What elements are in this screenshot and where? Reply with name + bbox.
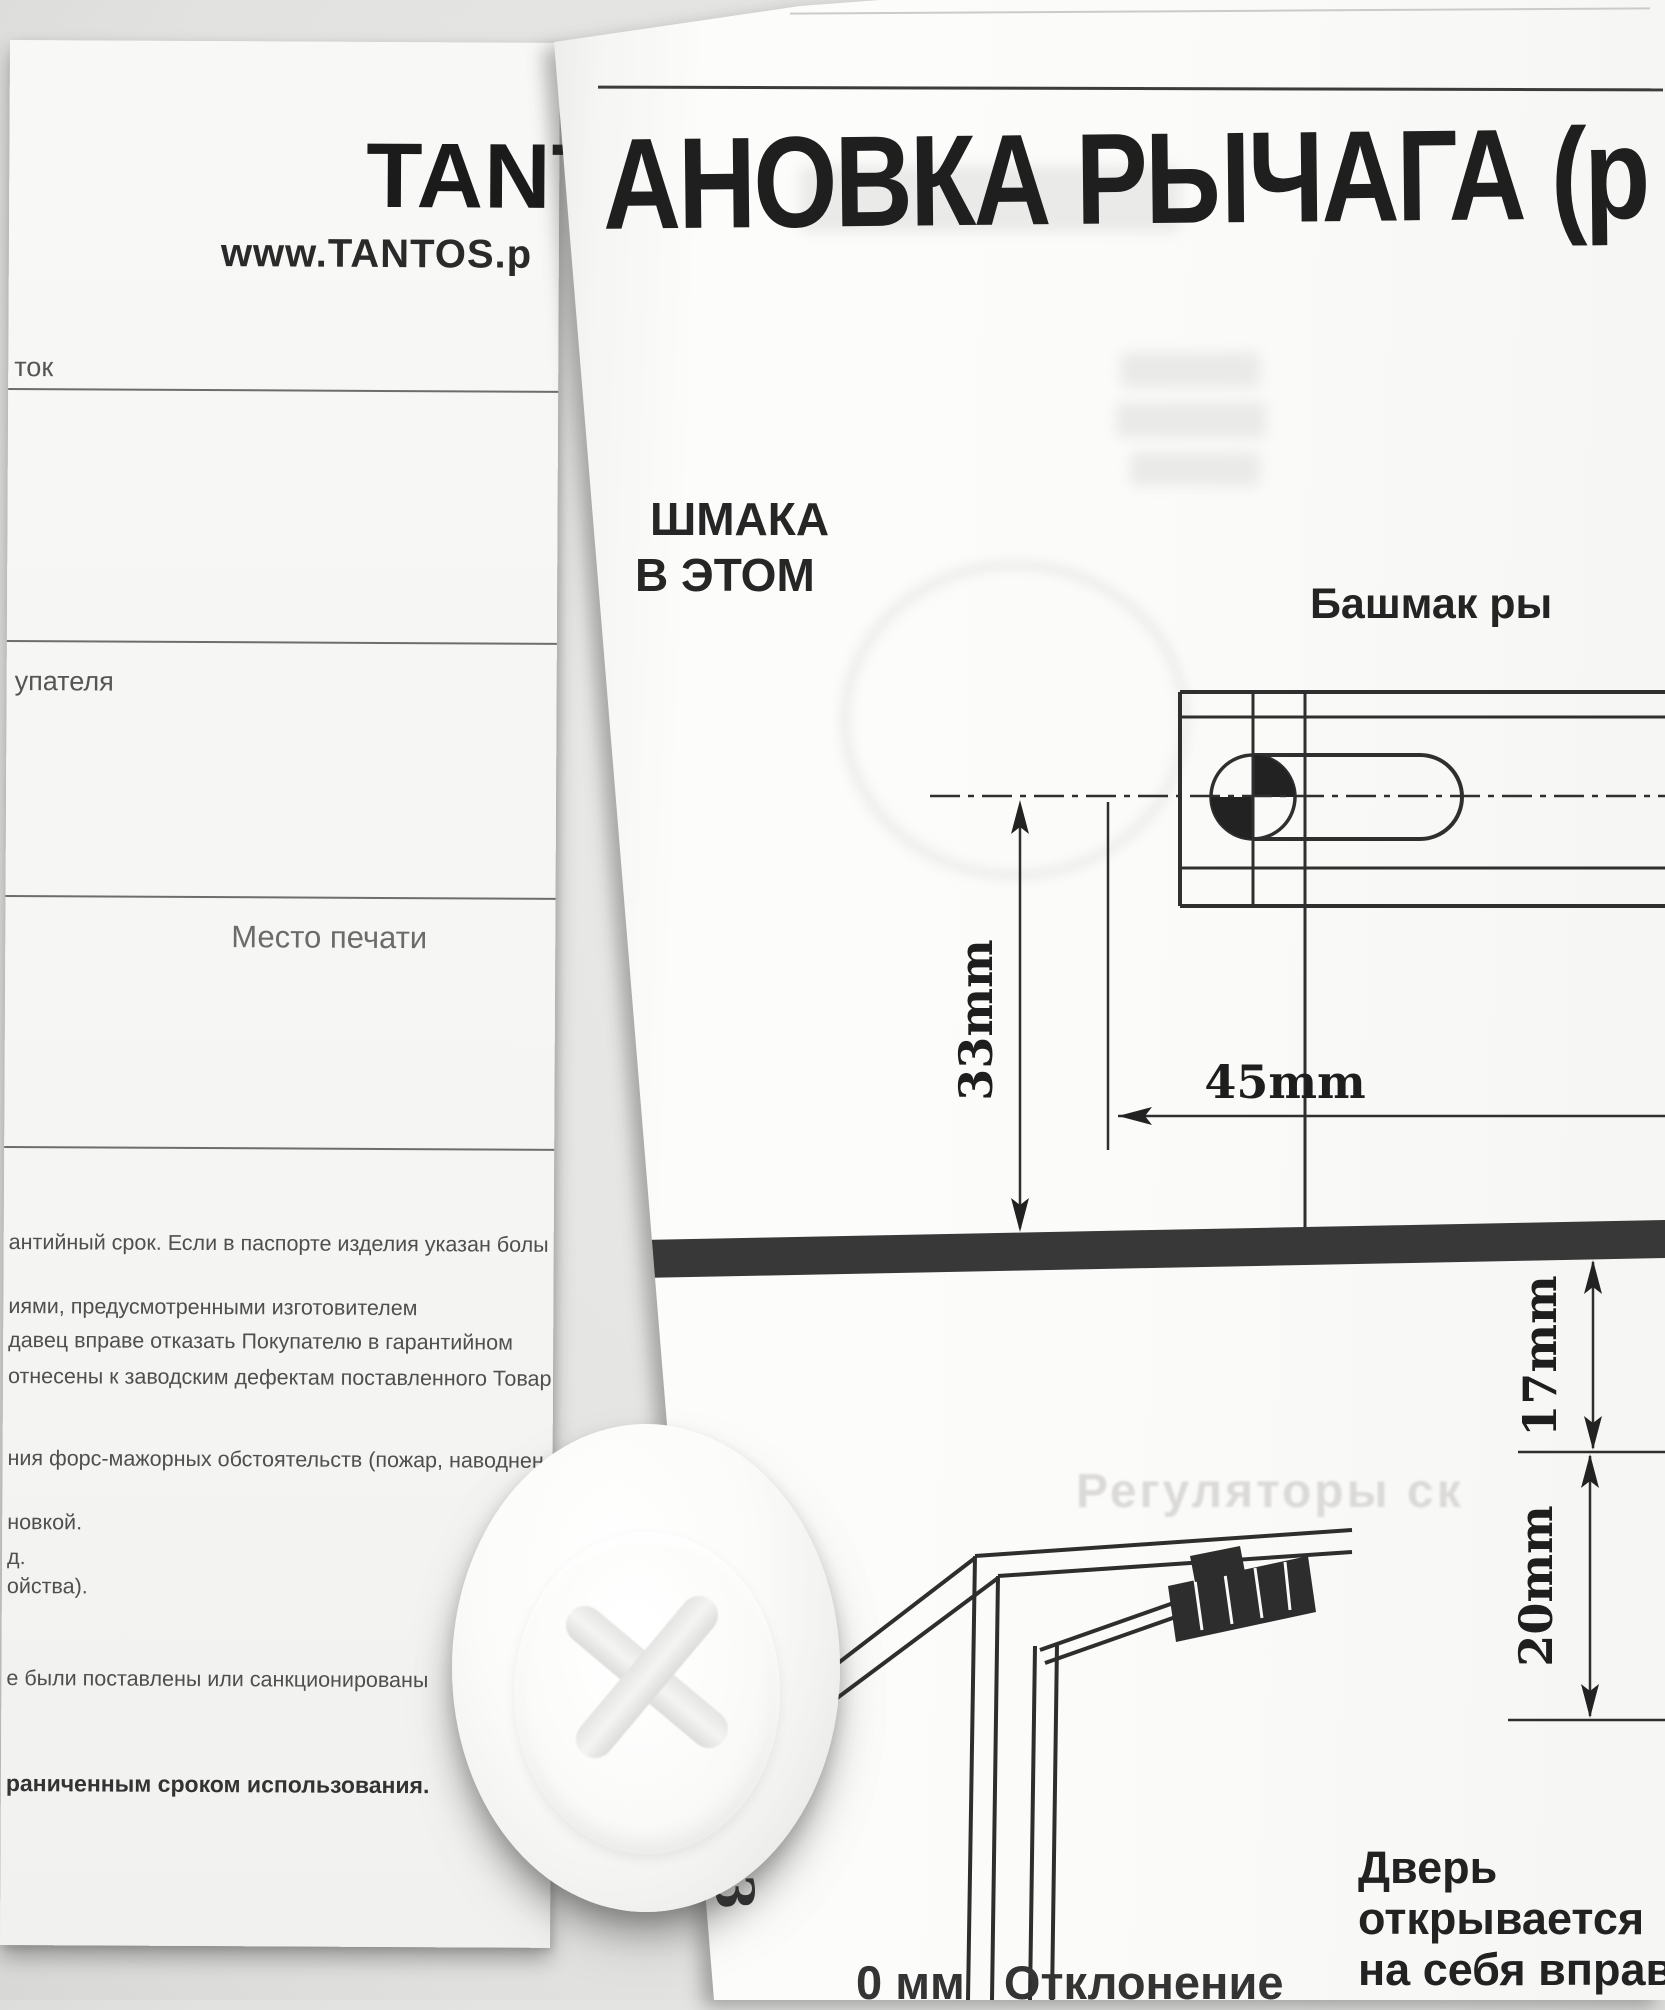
door-note-line: Дверь	[1358, 1842, 1665, 1893]
terms-line: новкой.	[7, 1510, 82, 1535]
brand-website-text: www.TANTOS.p	[221, 233, 532, 275]
terms-line: иями, предусмотренными изготовителем	[8, 1294, 417, 1321]
dimension-label-17mm: 17mm	[1513, 1275, 1567, 1436]
ghost-showthrough-text: Регуляторы ск	[1076, 1464, 1464, 1519]
terms-line: е были поставлены или санкционированы	[6, 1666, 428, 1693]
dimension-label-20mm: 20mm	[1509, 1505, 1563, 1666]
door-note-line: открывается	[1358, 1893, 1665, 1944]
closer-arm	[1040, 1600, 1182, 1650]
form-divider-line	[6, 895, 556, 900]
terms-line: ойства).	[7, 1574, 88, 1599]
divider-bar	[640, 1220, 1665, 1278]
door-direction-note: Дверь открывается на себя вправо	[1358, 1842, 1665, 1995]
door-note-line: на себя вправо	[1358, 1944, 1665, 1995]
plastic-cap	[452, 1424, 840, 1912]
terms-line: д.	[7, 1545, 26, 1570]
shoe-plan-drawing	[930, 692, 1665, 1232]
terms-line: давец вправе отказать Покупателю в гаран…	[8, 1328, 513, 1356]
form-divider-line	[8, 388, 558, 393]
closer-arm	[1045, 1613, 1187, 1663]
plastic-cap-center	[514, 1532, 780, 1854]
terms-line: ния форс-мажорных обстоятельств (пожар, …	[8, 1446, 544, 1474]
form-divider-line	[7, 640, 557, 645]
form-divider-line	[4, 1146, 554, 1151]
bottom-clipped-text: 0 мм Отклонение	[856, 1955, 1283, 2010]
terms-line: антийный срок. Если в паспорте изделия у…	[9, 1230, 549, 1258]
dimension-label-45mm: 45mm	[1204, 1055, 1365, 1109]
terms-line-bold: раниченным сроком использования.	[6, 1770, 430, 1799]
buyer-signature-label: упателя	[15, 666, 114, 698]
terms-line: отнесены к заводским дефектам поставленн…	[8, 1364, 552, 1392]
form-field-label: ток	[14, 352, 53, 383]
stamp-placeholder-label: Место печати	[231, 919, 427, 956]
dimension-label-33mm: 33mm	[949, 939, 1003, 1100]
